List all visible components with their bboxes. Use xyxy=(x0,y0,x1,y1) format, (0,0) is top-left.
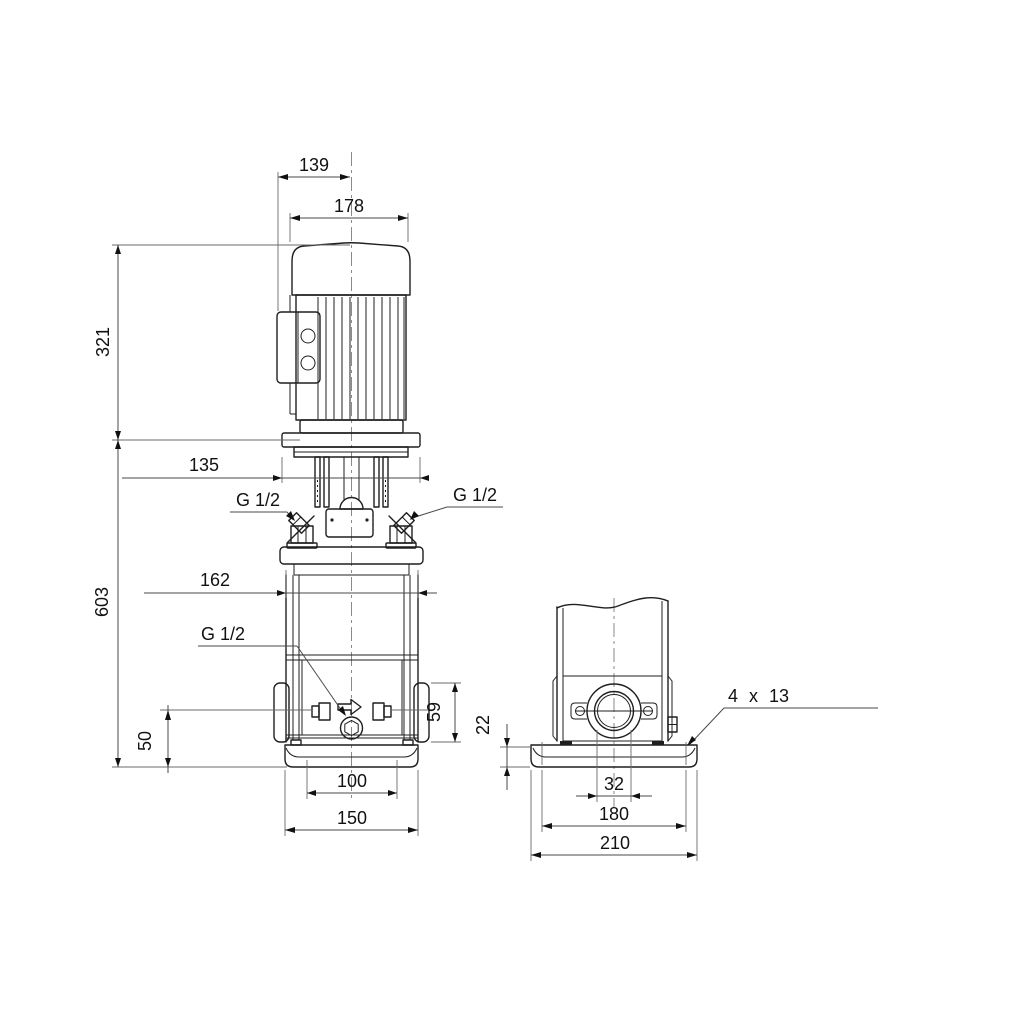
terminal-box xyxy=(277,295,320,414)
motor xyxy=(277,243,420,457)
dim-178: 178 xyxy=(290,196,408,242)
dim-59-label: 59 xyxy=(424,702,444,722)
dim-135-label: 135 xyxy=(189,455,219,475)
dim-22-label: 22 xyxy=(473,715,493,735)
dim-100-label: 100 xyxy=(337,771,367,791)
dim-210-label: 210 xyxy=(600,833,630,853)
dim-32-label: 32 xyxy=(604,774,624,794)
dim-150-label: 150 xyxy=(337,808,367,828)
dim-22: 22 xyxy=(473,715,530,790)
label-g12-right: G 1/2 xyxy=(410,485,503,520)
label-bolt-holes: 4 x 13 xyxy=(687,686,878,746)
bolt-holes-label: 4 x 13 xyxy=(728,686,789,706)
label-g12-drain: G 1/2 xyxy=(198,624,346,716)
dim-178-label: 178 xyxy=(334,196,364,216)
motor-fins xyxy=(318,297,404,419)
dim-50-label: 50 xyxy=(135,731,155,751)
port-flange-left xyxy=(274,683,289,742)
cable-entry-hole xyxy=(301,356,315,370)
break-line xyxy=(557,598,668,608)
dim-321-label: 321 xyxy=(93,327,113,357)
g12-right-label: G 1/2 xyxy=(453,485,497,505)
dim-139-label: 139 xyxy=(299,155,329,175)
label-g12-left: G 1/2 xyxy=(230,490,295,521)
coupling-guard xyxy=(326,509,373,537)
dim-139: 139 xyxy=(278,155,350,311)
dim-162: 162 xyxy=(144,570,437,598)
dim-162-label: 162 xyxy=(200,570,230,590)
dim-321-603: 321 603 xyxy=(92,245,350,767)
port-boss xyxy=(571,684,657,738)
pump-dimensional-drawing: 139 178 321 603 xyxy=(0,0,1024,1024)
dim-603-label: 603 xyxy=(92,587,112,617)
inner-plug-right xyxy=(373,703,391,720)
dim-180-label: 180 xyxy=(599,804,629,824)
pump-dimensional-drawing-page: 139 178 321 603 xyxy=(0,0,1024,1024)
inner-plug-left xyxy=(312,703,330,720)
dim-50: 50 xyxy=(135,705,430,773)
dimensions: 139 178 321 603 xyxy=(92,155,878,861)
staybolt-nut-right xyxy=(386,526,416,548)
cable-entry-hole xyxy=(301,329,315,343)
g12-left-label: G 1/2 xyxy=(236,490,280,510)
staybolt-nut-left xyxy=(287,526,317,548)
g12-drain-label: G 1/2 xyxy=(201,624,245,644)
